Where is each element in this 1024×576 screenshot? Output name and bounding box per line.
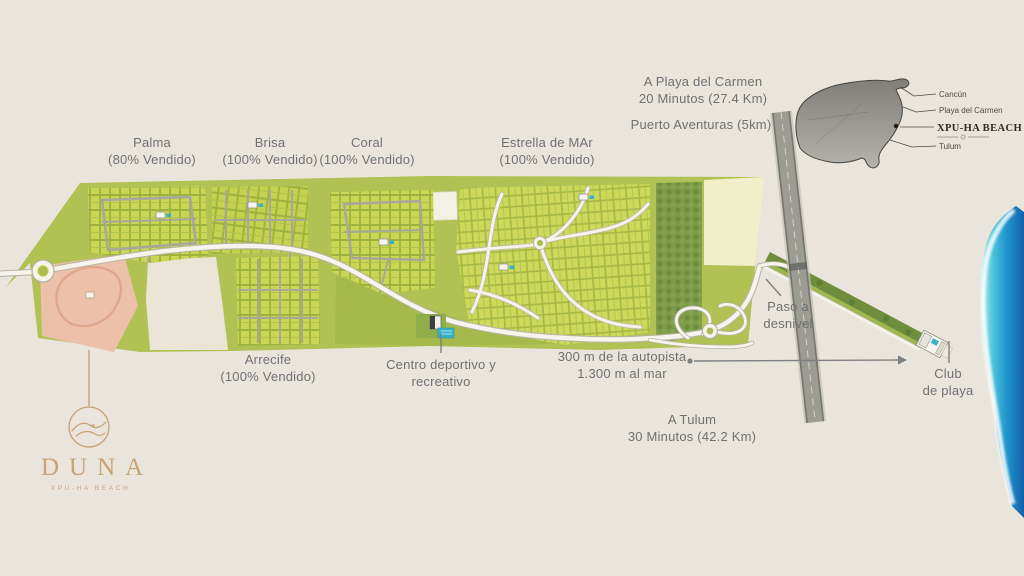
label-estrella-de-mar: Estrella de MAr(100% Vendido) [499, 135, 594, 169]
estrella-roundabout-icon [537, 240, 543, 246]
inset-divider [937, 135, 989, 139]
label-tulum: A Tulum30 Minutos (42.2 Km) [628, 412, 756, 446]
label-palma: Palma(80% Vendido) [108, 135, 196, 169]
autopista-dot [687, 358, 692, 363]
logo-name: DUNA [41, 454, 145, 482]
duna-logo-mark-icon [66, 404, 112, 450]
xpu-ha-location-dot [894, 124, 898, 128]
label-puerto-aventuras: Puerto Aventuras (5km) [631, 117, 772, 134]
inset-label-tulum: Tulum [939, 142, 961, 151]
label-brisa: Brisa(100% Vendido) [222, 135, 317, 169]
inset-location-map: Cancún Playa del Carmen XPU-HA BEACH Tul… [786, 74, 1024, 184]
inset-label-cancun: Cancún [939, 90, 967, 99]
arrecife-area [236, 246, 320, 346]
interchange-roundabout-icon [707, 328, 714, 335]
label-coral: Coral(100% Vendido) [319, 135, 414, 169]
label-autopista: 300 m de la autopista1.300 m al mar [558, 349, 687, 383]
label-paso-desnivel: Paso adesnivel [763, 299, 812, 333]
cleared-parcel [704, 177, 764, 266]
label-club-de-playa: Clubde playa [923, 366, 974, 400]
estrella-de-mar-area [456, 184, 650, 345]
masterplan-page: A Playa del Carmen20 Minutos (27.4 Km) P… [0, 0, 1024, 576]
duna-logo: DUNA XPU-HA BEACH [33, 404, 145, 492]
logo-subtitle: XPU-HA BEACH [36, 485, 145, 492]
label-playa-del-carmen: A Playa del Carmen20 Minutos (27.4 Km) [639, 74, 767, 108]
label-centro-deportivo: Centro deportivo yrecreativo [386, 357, 496, 391]
inset-label-playa-del-carmen: Playa del Carmen [939, 106, 1003, 115]
inset-label-xpu-ha-beach: XPU-HA BEACH [937, 123, 1022, 134]
label-arrecife: Arrecife(100% Vendido) [220, 352, 315, 386]
yucatan-peninsula-shape [796, 79, 909, 168]
sand-patch [146, 257, 228, 350]
entry-roundabout-icon [32, 260, 54, 282]
